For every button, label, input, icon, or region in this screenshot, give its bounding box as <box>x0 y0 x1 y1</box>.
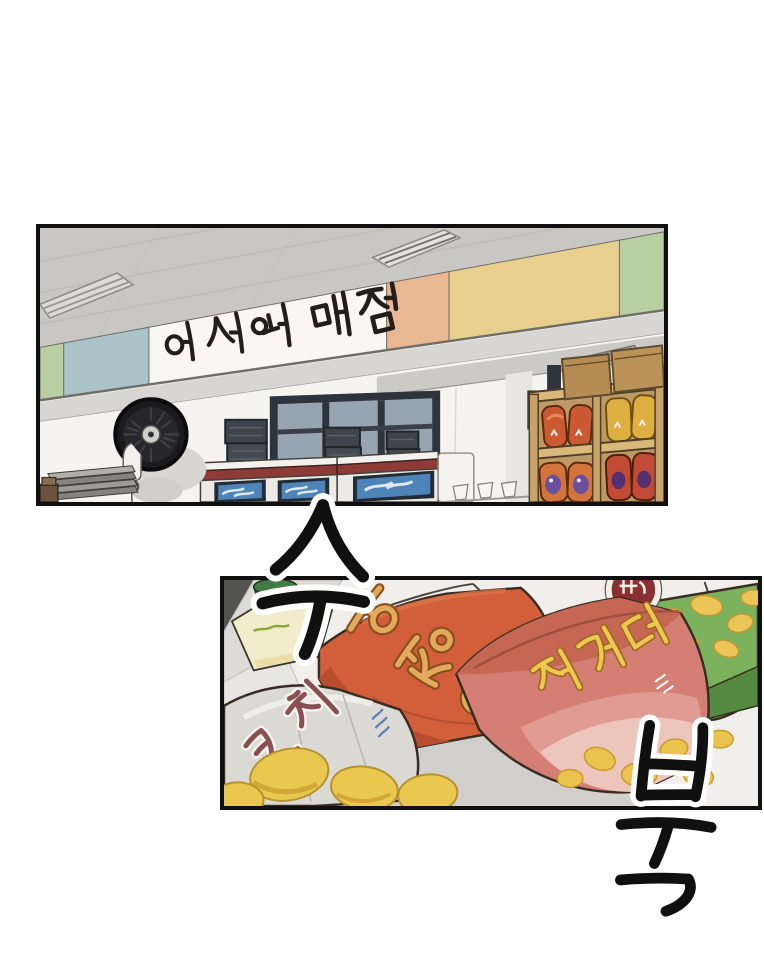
sfx-buk-text: 북 <box>586 714 756 929</box>
store-scene: 어서와 매점 <box>40 228 664 502</box>
snack-shelf <box>529 345 664 502</box>
panel-store-interior: 어서와 매점 <box>36 224 668 506</box>
sfx-su-text: 수 <box>232 490 407 675</box>
comic-page: { "page": { "kind": "webtoon comic page"… <box>0 0 764 977</box>
sundry-boxes <box>40 478 58 502</box>
sfx-bottom: 북 <box>586 714 756 929</box>
sfx-top: 수 <box>232 490 407 675</box>
